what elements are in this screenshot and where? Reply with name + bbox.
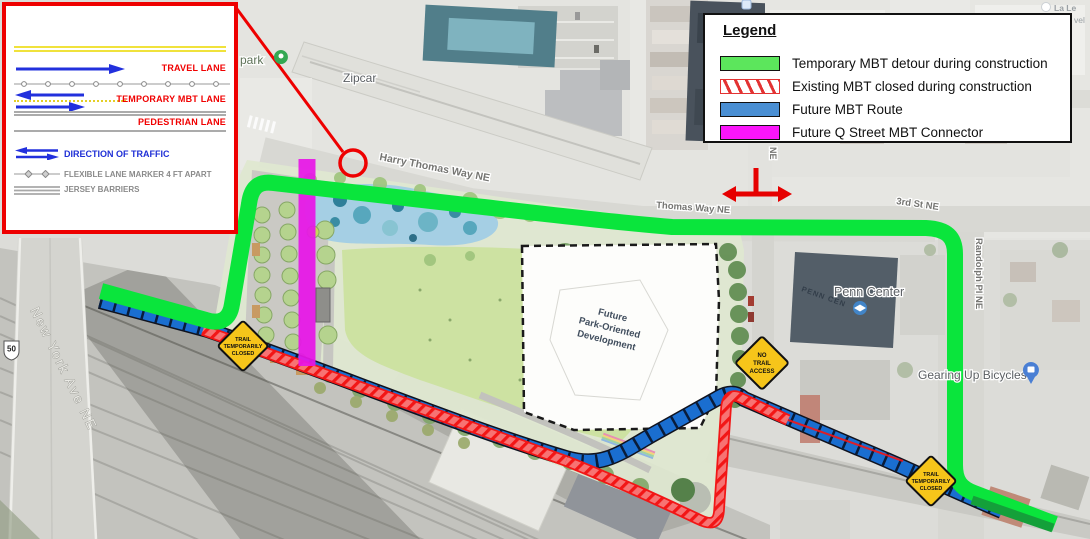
- poi-label-bike-shop[interactable]: Gearing Up Bicycles: [918, 368, 1027, 382]
- pedestrian-lane-label: PEDESTRIAN LANE: [138, 117, 226, 127]
- flexible-marker-icon: [14, 170, 60, 178]
- poi-label-penn-center[interactable]: Penn Center: [834, 285, 904, 299]
- travel-lane-label: TRAVEL LANE: [162, 63, 226, 73]
- poi-label-zipcar[interactable]: Zipcar: [343, 71, 376, 85]
- travel-lane-arrow-icon: [14, 64, 126, 74]
- detour-map-page: Future Park-Oriented Development TRAIL: [0, 0, 1090, 539]
- svg-text:TRAIL: TRAIL: [753, 361, 771, 367]
- blue-swatch: [720, 102, 780, 117]
- svg-text:50: 50: [7, 345, 16, 354]
- legend-item-detour[interactable]: Temporary MBT detour during construction: [720, 55, 1048, 72]
- jersey-barrier-line: [14, 111, 226, 113]
- svg-text:TRAIL: TRAIL: [923, 472, 940, 478]
- svg-text:vel: vel: [1074, 15, 1085, 25]
- legend-item-closed[interactable]: Existing MBT closed during construction: [720, 78, 1032, 95]
- penn-center-icon: [853, 301, 867, 315]
- svg-text:TEMPORARILY: TEMPORARILY: [224, 344, 263, 350]
- mbt-lane-left-arrow-icon: [14, 90, 86, 100]
- street-label-ne: NE: [768, 147, 778, 160]
- svg-text:La Le: La Le: [1054, 3, 1076, 13]
- park-pin-icon: [274, 50, 288, 64]
- legend-item-connector[interactable]: Future Q Street MBT Connector: [720, 124, 983, 141]
- jersey-barriers-icon: [14, 185, 60, 195]
- legend-panel: Legend Temporary MBT detour during const…: [703, 13, 1072, 143]
- svg-text:CLOSED: CLOSED: [920, 486, 943, 492]
- legend-title: Legend: [723, 22, 776, 39]
- svg-text:CLOSED: CLOSED: [232, 351, 255, 357]
- double-yellow-line: [14, 46, 226, 48]
- direction-of-traffic-label: DIRECTION OF TRAFFIC: [64, 149, 170, 159]
- magenta-swatch: [720, 125, 780, 140]
- route-50-shield: 50: [4, 341, 19, 360]
- lane-diagram-inset: TRAVEL LANE TEMPORARY MBT LANE PEDESTRIA…: [2, 2, 238, 234]
- legend-item-future[interactable]: Future MBT Route: [720, 101, 903, 118]
- flexible-marker-label: FLEXIBLE LANE MARKER 4 FT APART: [64, 170, 212, 179]
- svg-text:NO: NO: [758, 353, 767, 359]
- svg-text:TRAIL: TRAIL: [235, 337, 252, 343]
- street-label-randolph-pl: Randolph Pl NE: [973, 238, 984, 309]
- future-development-parcel: Future Park-Oriented Development: [522, 244, 719, 430]
- temporary-mbt-lane-label: TEMPORARY MBT LANE: [116, 94, 226, 104]
- svg-text:TEMPORARILY: TEMPORARILY: [912, 479, 951, 485]
- green-swatch: [720, 56, 780, 71]
- direction-of-traffic-icon: [14, 147, 60, 160]
- jersey-barriers-label: JERSEY BARRIERS: [64, 185, 139, 194]
- svg-text:ACCESS: ACCESS: [749, 369, 774, 375]
- red-hatch-swatch: [720, 79, 780, 94]
- flexible-marker-line: [14, 80, 230, 88]
